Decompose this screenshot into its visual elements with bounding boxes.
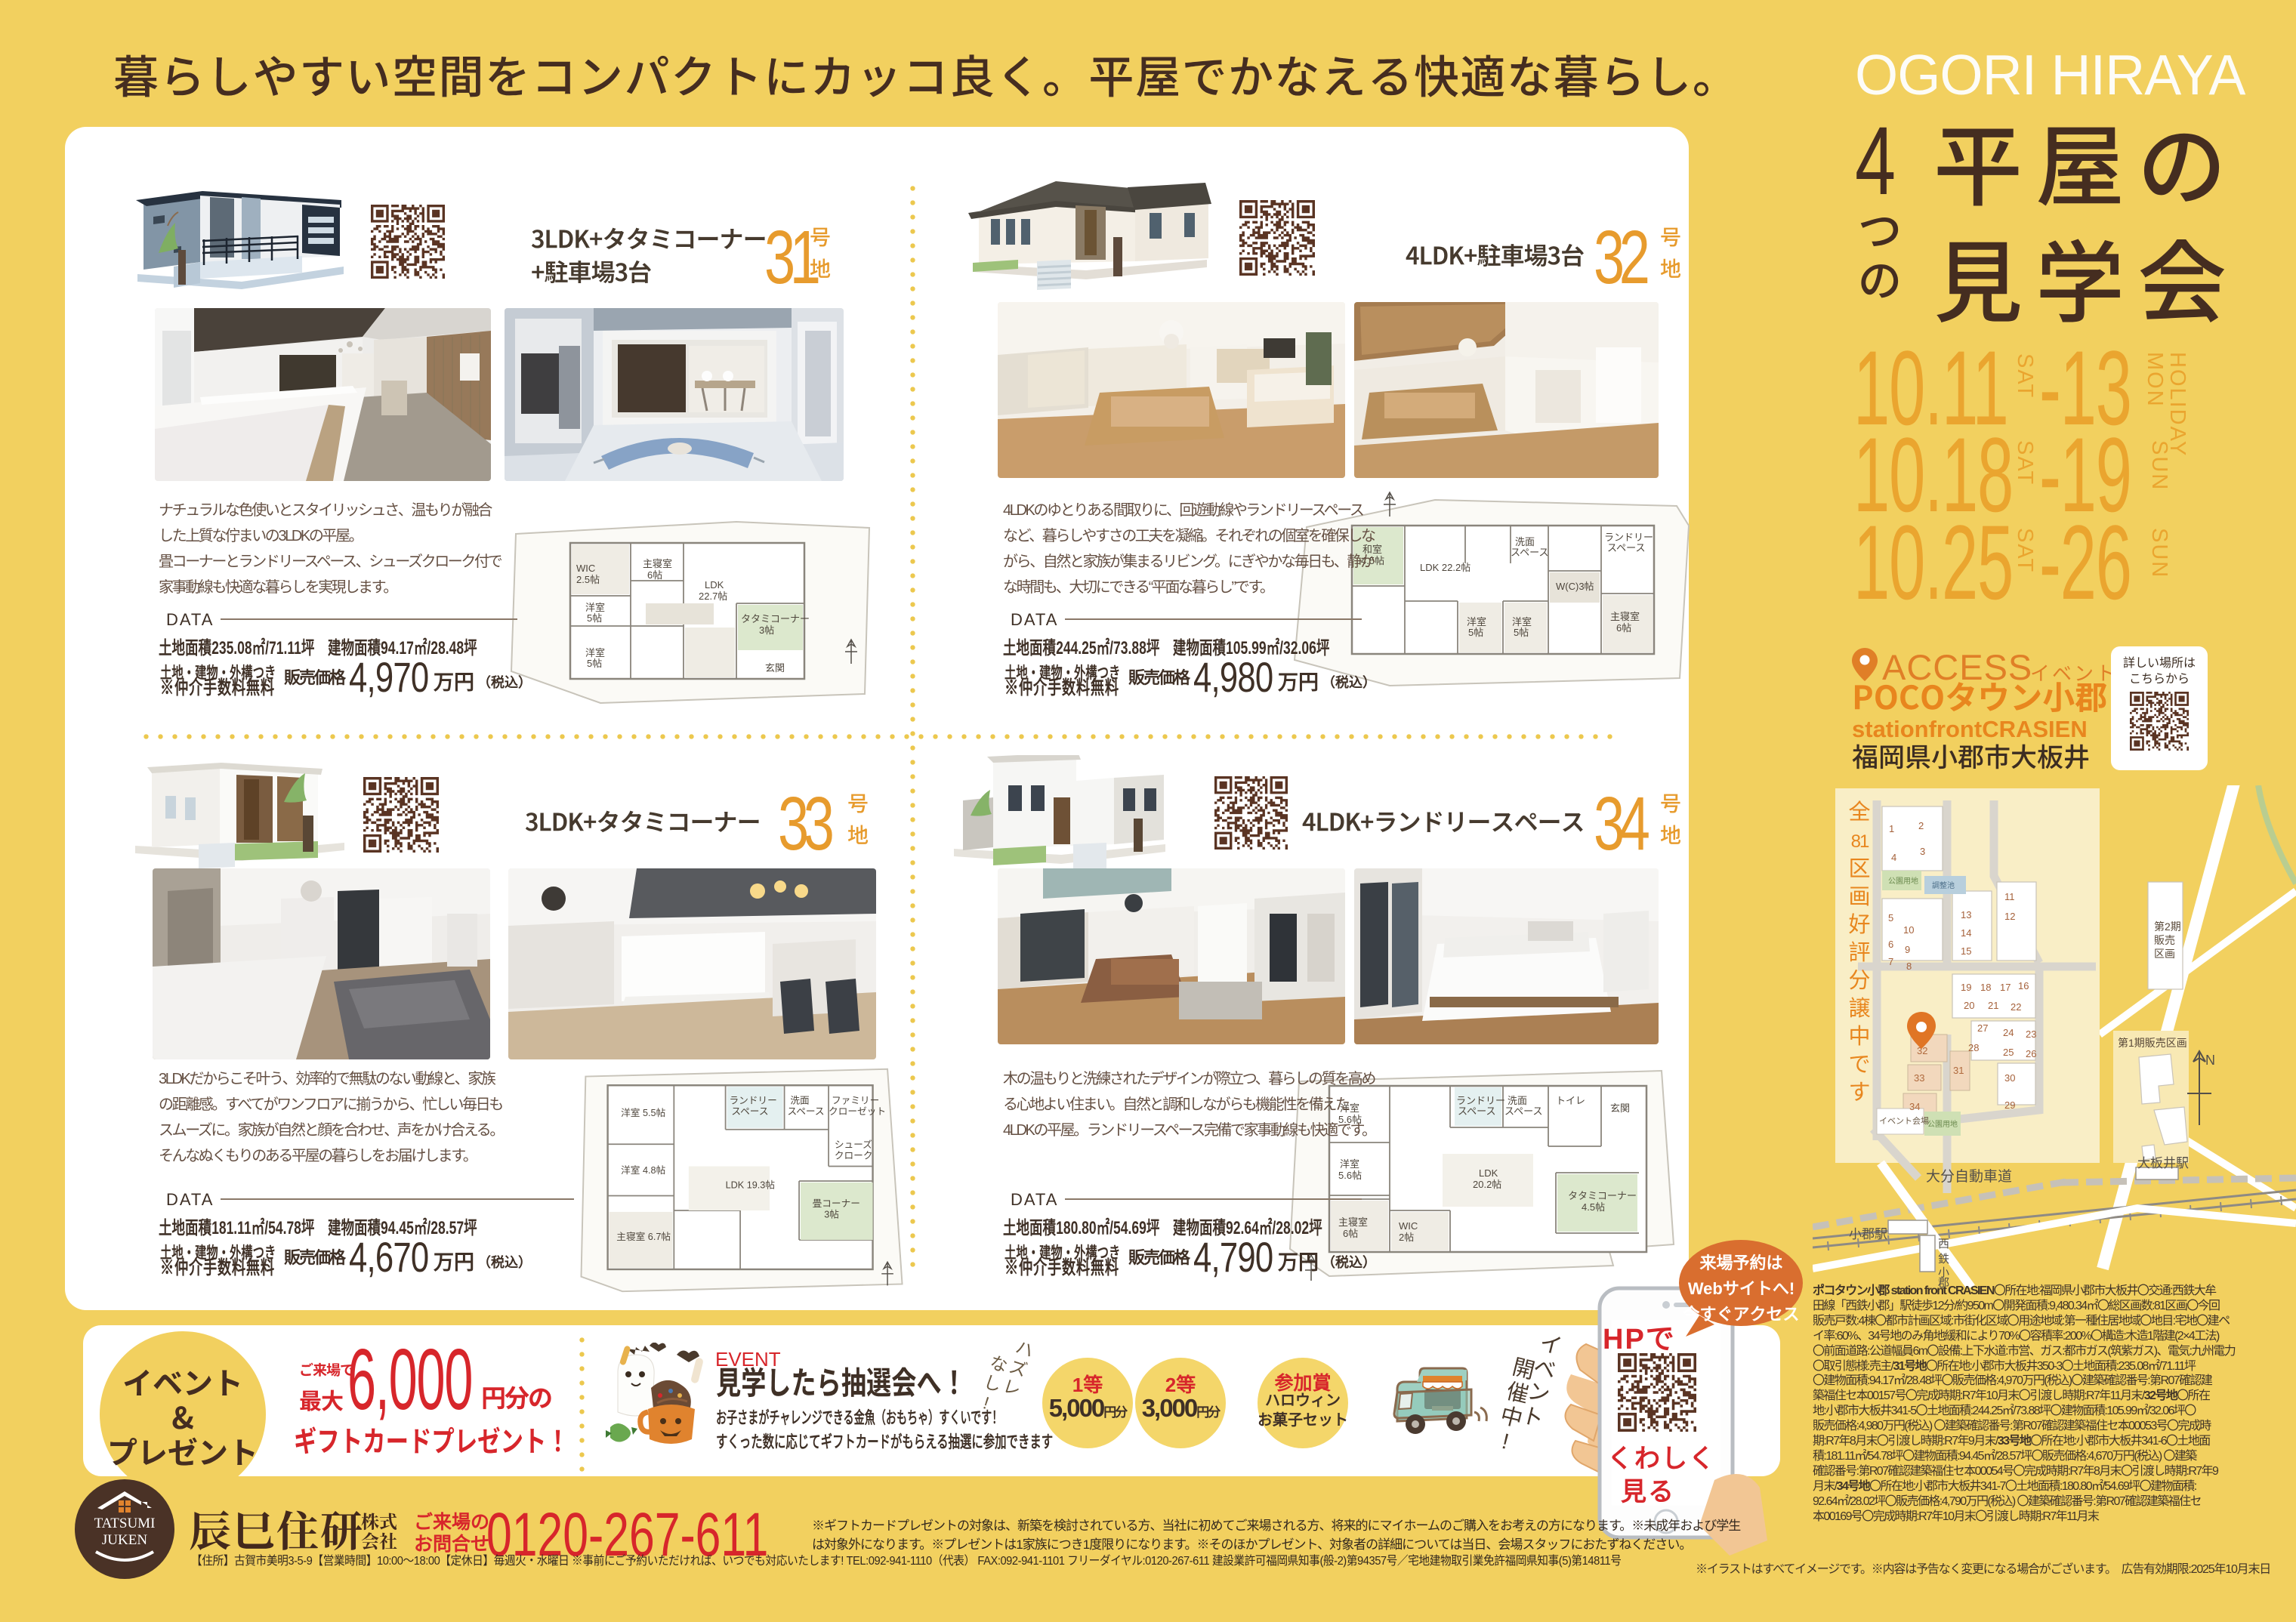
svg-text:鉄: 鉄 <box>1938 1253 1949 1266</box>
svg-text:スペース: スペース <box>1511 547 1548 558</box>
svg-text:5帖: 5帖 <box>1468 627 1483 638</box>
svg-text:WIC: WIC <box>1399 1220 1418 1232</box>
svg-text:洗面: 洗面 <box>790 1096 809 1106</box>
svg-text:5.6帖: 5.6帖 <box>1338 1170 1362 1181</box>
svg-text:5帖: 5帖 <box>587 658 602 669</box>
svg-text:2: 2 <box>1918 820 1924 831</box>
svg-text:LDK 22.2帖: LDK 22.2帖 <box>1420 562 1470 573</box>
svg-text:4.5帖: 4.5帖 <box>1582 1201 1605 1213</box>
svg-text:6帖: 6帖 <box>1343 1228 1358 1239</box>
svg-text:大板井駅: 大板井駅 <box>2137 1156 2189 1170</box>
svg-text:25: 25 <box>2003 1047 2014 1058</box>
svg-text:8: 8 <box>1906 961 1912 972</box>
svg-text:20.2帖: 20.2帖 <box>1473 1179 1501 1190</box>
svg-text:1: 1 <box>1889 823 1894 834</box>
svg-text:玄関: 玄関 <box>765 662 785 674</box>
svg-text:公園用地: 公園用地 <box>1927 1119 1958 1129</box>
svg-text:クローゼット: クローゼット <box>829 1106 886 1117</box>
svg-text:9: 9 <box>1905 944 1910 955</box>
svg-text:33: 33 <box>1914 1072 1924 1084</box>
svg-text:11: 11 <box>2004 891 2015 902</box>
svg-text:7: 7 <box>1888 956 1893 967</box>
svg-text:洋室: 洋室 <box>1467 616 1486 628</box>
svg-text:22.7帖: 22.7帖 <box>699 591 727 602</box>
svg-text:西: 西 <box>1938 1238 1949 1250</box>
svg-text:ランドリー: ランドリー <box>1604 532 1653 543</box>
svg-text:主寝室: 主寝室 <box>1610 611 1640 622</box>
svg-text:12: 12 <box>2004 911 2015 922</box>
svg-text:16: 16 <box>2018 980 2029 991</box>
svg-text:ファミリー: ファミリー <box>832 1096 879 1106</box>
svg-text:ランドリー: ランドリー <box>1456 1095 1505 1106</box>
svg-text:13: 13 <box>1961 909 1971 920</box>
svg-text:6帖: 6帖 <box>1616 622 1631 634</box>
svg-text:3帖: 3帖 <box>759 624 774 636</box>
svg-text:主寝室 6.7帖: 主寝室 6.7帖 <box>616 1231 671 1242</box>
svg-text:主寝室: 主寝室 <box>1338 1216 1368 1228</box>
svg-text:27: 27 <box>1977 1022 1988 1034</box>
svg-text:24: 24 <box>2003 1027 2014 1038</box>
svg-text:15: 15 <box>1961 945 1971 957</box>
svg-text:第1期販売区画: 第1期販売区画 <box>2118 1037 2187 1049</box>
svg-text:スペース: スペース <box>731 1106 768 1117</box>
svg-text:洗面: 洗面 <box>1515 536 1535 547</box>
svg-text:洗面: 洗面 <box>1508 1095 1527 1106</box>
svg-text:31: 31 <box>1953 1065 1964 1076</box>
svg-text:28: 28 <box>1968 1042 1979 1053</box>
svg-text:19: 19 <box>1961 982 1971 993</box>
svg-text:洋室: 洋室 <box>1512 616 1532 628</box>
svg-text:23: 23 <box>2026 1028 2036 1040</box>
svg-text:26: 26 <box>2026 1048 2036 1059</box>
svg-text:洋室: 洋室 <box>585 602 605 613</box>
svg-text:シューズ: シューズ <box>835 1139 872 1150</box>
svg-text:30: 30 <box>2004 1072 2015 1084</box>
svg-text:LDK 19.3帖: LDK 19.3帖 <box>726 1180 776 1191</box>
svg-text:JUKEN: JUKEN <box>102 1532 147 1548</box>
svg-text:17: 17 <box>2000 982 2011 993</box>
svg-text:スペース: スペース <box>1504 1105 1542 1117</box>
svg-text:LDK: LDK <box>1479 1167 1498 1179</box>
svg-text:洋室: 洋室 <box>1340 1158 1359 1170</box>
svg-text:ランドリー: ランドリー <box>729 1096 776 1106</box>
svg-text:区画: 区画 <box>2154 948 2175 960</box>
svg-text:2帖: 2帖 <box>1399 1232 1414 1243</box>
svg-text:畳コーナー: 畳コーナー <box>813 1198 860 1209</box>
svg-text:14: 14 <box>1961 927 1971 939</box>
svg-text:洋室 5.5帖: 洋室 5.5帖 <box>621 1107 665 1118</box>
svg-text:洋室: 洋室 <box>585 647 605 658</box>
svg-text:N: N <box>2205 1053 2215 1068</box>
svg-text:クローク: クローク <box>835 1151 873 1161</box>
svg-text:調整池: 調整池 <box>1932 880 1955 890</box>
svg-text:2.5帖: 2.5帖 <box>576 574 600 585</box>
svg-text:6: 6 <box>1888 939 1893 950</box>
svg-text:TATSUMI: TATSUMI <box>94 1516 156 1531</box>
svg-text:3帖: 3帖 <box>824 1210 839 1220</box>
svg-text:公園用地: 公園用地 <box>1888 876 1918 886</box>
svg-text:W(C)3帖: W(C)3帖 <box>1556 581 1594 592</box>
svg-text:5: 5 <box>1888 912 1893 924</box>
svg-text:5帖: 5帖 <box>1514 627 1529 638</box>
svg-text:10: 10 <box>1903 924 1914 936</box>
svg-text:タタミコーナー: タタミコーナー <box>1568 1190 1637 1201</box>
svg-text:4: 4 <box>1891 852 1896 863</box>
svg-text:21: 21 <box>1988 1000 1998 1011</box>
svg-text:6帖: 6帖 <box>647 569 662 581</box>
svg-text:タタミコーナー: タタミコーナー <box>741 613 810 624</box>
svg-text:3: 3 <box>1920 846 1925 857</box>
svg-text:34: 34 <box>1909 1101 1920 1112</box>
svg-text:20: 20 <box>1964 1000 1974 1011</box>
svg-text:スペース: スペース <box>787 1106 824 1117</box>
svg-text:5帖: 5帖 <box>587 612 602 624</box>
svg-text:第2期: 第2期 <box>2154 920 2181 933</box>
svg-text:スペース: スペース <box>1607 542 1645 554</box>
svg-text:洋室 4.8帖: 洋室 4.8帖 <box>621 1164 665 1176</box>
svg-text:29: 29 <box>2004 1099 2015 1111</box>
svg-text:主寝室: 主寝室 <box>643 558 672 569</box>
svg-text:18: 18 <box>1980 982 1991 993</box>
svg-text:LDK: LDK <box>705 579 724 591</box>
svg-text:玄関: 玄関 <box>1610 1102 1630 1114</box>
svg-text:トイレ: トイレ <box>1556 1095 1585 1106</box>
svg-text:スペース: スペース <box>1458 1105 1495 1117</box>
svg-text:イベント会場: イベント会場 <box>1879 1116 1929 1126</box>
svg-text:大分自動車道: 大分自動車道 <box>1926 1168 2012 1185</box>
svg-text:小郡駅: 小郡駅 <box>1849 1227 1887 1241</box>
svg-text:22: 22 <box>2011 1001 2021 1013</box>
svg-text:WIC: WIC <box>576 563 595 574</box>
svg-text:販売: 販売 <box>2154 934 2175 946</box>
